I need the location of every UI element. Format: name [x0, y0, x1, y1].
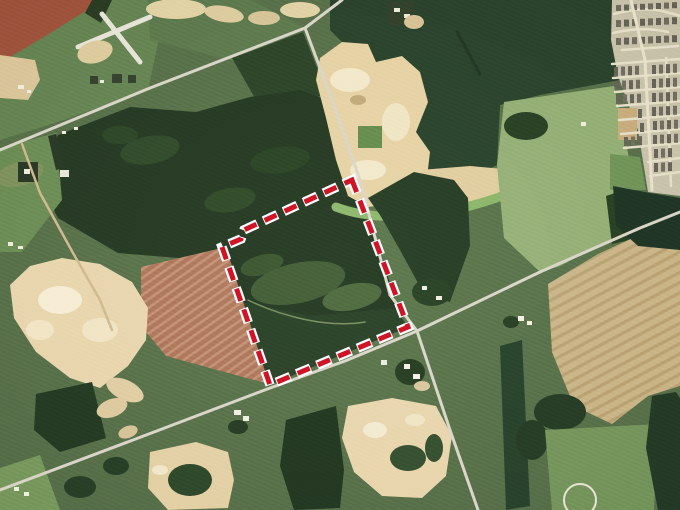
- house-roadB-1: [62, 131, 66, 134]
- farmstead-roadC-roof1: [234, 410, 241, 415]
- subdivision-houses-l2: [622, 81, 626, 90]
- farm-compound-roof: [24, 169, 30, 174]
- sand-blob-top4: [280, 2, 320, 18]
- subdivision-houses-top3: [624, 38, 629, 45]
- subdivision-houses-l2: [636, 80, 640, 89]
- buildings-sand-left1: [18, 85, 24, 89]
- subdivision-houses-l3: [630, 94, 634, 103]
- farm-south-trees: [503, 316, 519, 328]
- subdivision-houses-r5: [667, 120, 671, 129]
- subdivision-houses-top1: [648, 3, 653, 9]
- farmstead-top-roof1: [394, 8, 400, 12]
- subdivision-houses-top1: [672, 2, 677, 8]
- subdivision-houses-r5: [674, 120, 678, 129]
- subdivision-houses-top2: [656, 18, 661, 25]
- pit-north-dark: [350, 95, 366, 105]
- subdivision-houses-r8: [654, 163, 658, 172]
- subdivision-houses-l3: [623, 95, 627, 104]
- subdivision-houses-r2: [652, 79, 656, 88]
- house-east-road2: [436, 296, 442, 300]
- farm-intersection-dirt: [414, 381, 430, 391]
- pit-south1-white: [152, 465, 168, 475]
- subdivision-houses-r5: [660, 121, 664, 130]
- pit-green-plot: [358, 126, 382, 148]
- hangar-row2: [112, 74, 122, 83]
- subdivision-houses-top2: [672, 17, 677, 24]
- forest-blob-sw2: [103, 457, 129, 475]
- farm-south-roof2: [527, 321, 532, 325]
- forest-strip-center-bottom: [280, 406, 344, 510]
- subdivision-houses-r3: [652, 93, 656, 102]
- meadow-tree-blob: [504, 112, 548, 140]
- pit-north-white2: [382, 103, 410, 141]
- subdivision-houses-l1: [614, 67, 618, 76]
- subdivision-houses-top1: [640, 4, 645, 10]
- subdivision-houses-top2: [640, 19, 645, 26]
- subdivision-houses-l6: [638, 136, 642, 145]
- subdivision-houses-top3: [672, 35, 677, 42]
- subdivision-houses-top2: [616, 20, 621, 27]
- subdivision-houses-l3: [637, 94, 641, 103]
- subdivision-houses-top3: [616, 38, 621, 45]
- subdivision-houses-top1: [624, 5, 629, 11]
- subdivision-houses-l2: [615, 81, 619, 90]
- subdivision-houses-l3: [616, 95, 620, 104]
- subdivision-houses-l1: [628, 66, 632, 75]
- subdivision-houses-top1: [616, 5, 621, 11]
- buildings-sand-left2: [27, 90, 31, 93]
- forest-blob-sw1: [64, 476, 96, 498]
- subdivision-houses-r1: [666, 64, 670, 73]
- house-east-road1: [422, 286, 427, 290]
- subdivision-houses-top1: [664, 3, 669, 9]
- subdivision-houses-r4: [659, 107, 663, 116]
- subdivision-houses-r6: [653, 135, 657, 144]
- pit-south2-white2: [405, 414, 425, 426]
- subdivision-houses-r7: [668, 148, 672, 157]
- subdivision-houses-r1: [659, 65, 663, 74]
- hangar-roof: [100, 80, 104, 83]
- meadow-white-dot: [581, 122, 586, 126]
- farm-intersection-roof1: [404, 364, 410, 369]
- farmstead-roadC-roof2: [243, 416, 249, 421]
- subdivision-houses-l6: [624, 137, 628, 146]
- pit-south1-trees: [168, 464, 212, 496]
- aerial-photo: [0, 0, 680, 510]
- subdivision-houses-r1: [673, 64, 677, 73]
- house-roadB-2: [74, 127, 78, 130]
- subdivision-houses-r2: [673, 78, 677, 87]
- subdivision-houses-r8: [661, 163, 665, 172]
- farmstead-top-dirt: [404, 15, 424, 29]
- scene-svg: [0, 0, 680, 510]
- subdivision-houses-top3: [656, 36, 661, 43]
- pit-south2-trees1: [390, 445, 426, 471]
- pit-west-white1: [38, 286, 82, 314]
- pit-north-white1: [330, 68, 370, 92]
- subdivision-houses-top1: [656, 3, 661, 9]
- buildings-laneD-2: [18, 246, 23, 249]
- white-building-lane: [60, 170, 69, 177]
- subdivision-houses-r1: [652, 65, 656, 74]
- subdivision-houses-r8: [668, 162, 672, 171]
- subdivision-houses-l4: [638, 109, 642, 118]
- subdivision-houses-l6: [631, 137, 635, 146]
- forest-blob-se2: [516, 420, 548, 460]
- farmstead-roadC-trees: [228, 420, 248, 434]
- subdivision-houses-r4: [666, 106, 670, 115]
- pit-south2-trees2: [425, 434, 443, 462]
- subdivision-houses-l2: [629, 80, 633, 89]
- hangar-row1: [90, 76, 98, 84]
- forest-texture3: [102, 126, 138, 144]
- subdivision-houses-r7: [654, 149, 658, 158]
- subdivision-houses-r4: [652, 107, 656, 116]
- pit-west-white3: [26, 320, 54, 340]
- field-bottomright-light: [545, 424, 658, 510]
- subdivision-houses-top3: [648, 36, 653, 43]
- subdivision-houses-r5: [653, 121, 657, 130]
- subdivision-houses-top3: [664, 36, 669, 43]
- subdivision-houses-top3: [632, 37, 637, 44]
- subdivision-houses-top2: [624, 20, 629, 27]
- subdivision-houses-top2: [664, 18, 669, 25]
- subdivision-houses-top2: [648, 18, 653, 25]
- subdivision-houses-r6: [660, 135, 664, 144]
- subdivision-houses-r6: [674, 134, 678, 143]
- buildings-laneD-1: [8, 242, 13, 246]
- farm-sw-roof1: [14, 487, 19, 491]
- farm-intersection-roof2: [413, 374, 420, 379]
- subdivision-houses-r2: [666, 78, 670, 87]
- sand-blob-top3: [248, 11, 280, 25]
- subdivision-houses-l1: [635, 66, 639, 75]
- subdivision-houses-r6: [667, 134, 671, 143]
- subdivision-houses-r7: [661, 149, 665, 158]
- subdivision-houses-r3: [673, 92, 677, 101]
- farm-sw-roof2: [24, 492, 29, 496]
- building-in-parcel: [381, 360, 387, 365]
- subdivision-houses-r3: [666, 92, 670, 101]
- subdivision-houses-r2: [659, 79, 663, 88]
- subdivision-houses-r3: [659, 93, 663, 102]
- subdivision-houses-r4: [673, 106, 677, 115]
- farm-south-roof1: [518, 316, 524, 321]
- subdivision-houses-l1: [621, 67, 625, 76]
- subdivision-houses-l5: [640, 123, 644, 132]
- hangar-row3: [128, 75, 136, 83]
- pit-south2-white1: [363, 422, 387, 438]
- trees-houses-east-road: [412, 278, 452, 306]
